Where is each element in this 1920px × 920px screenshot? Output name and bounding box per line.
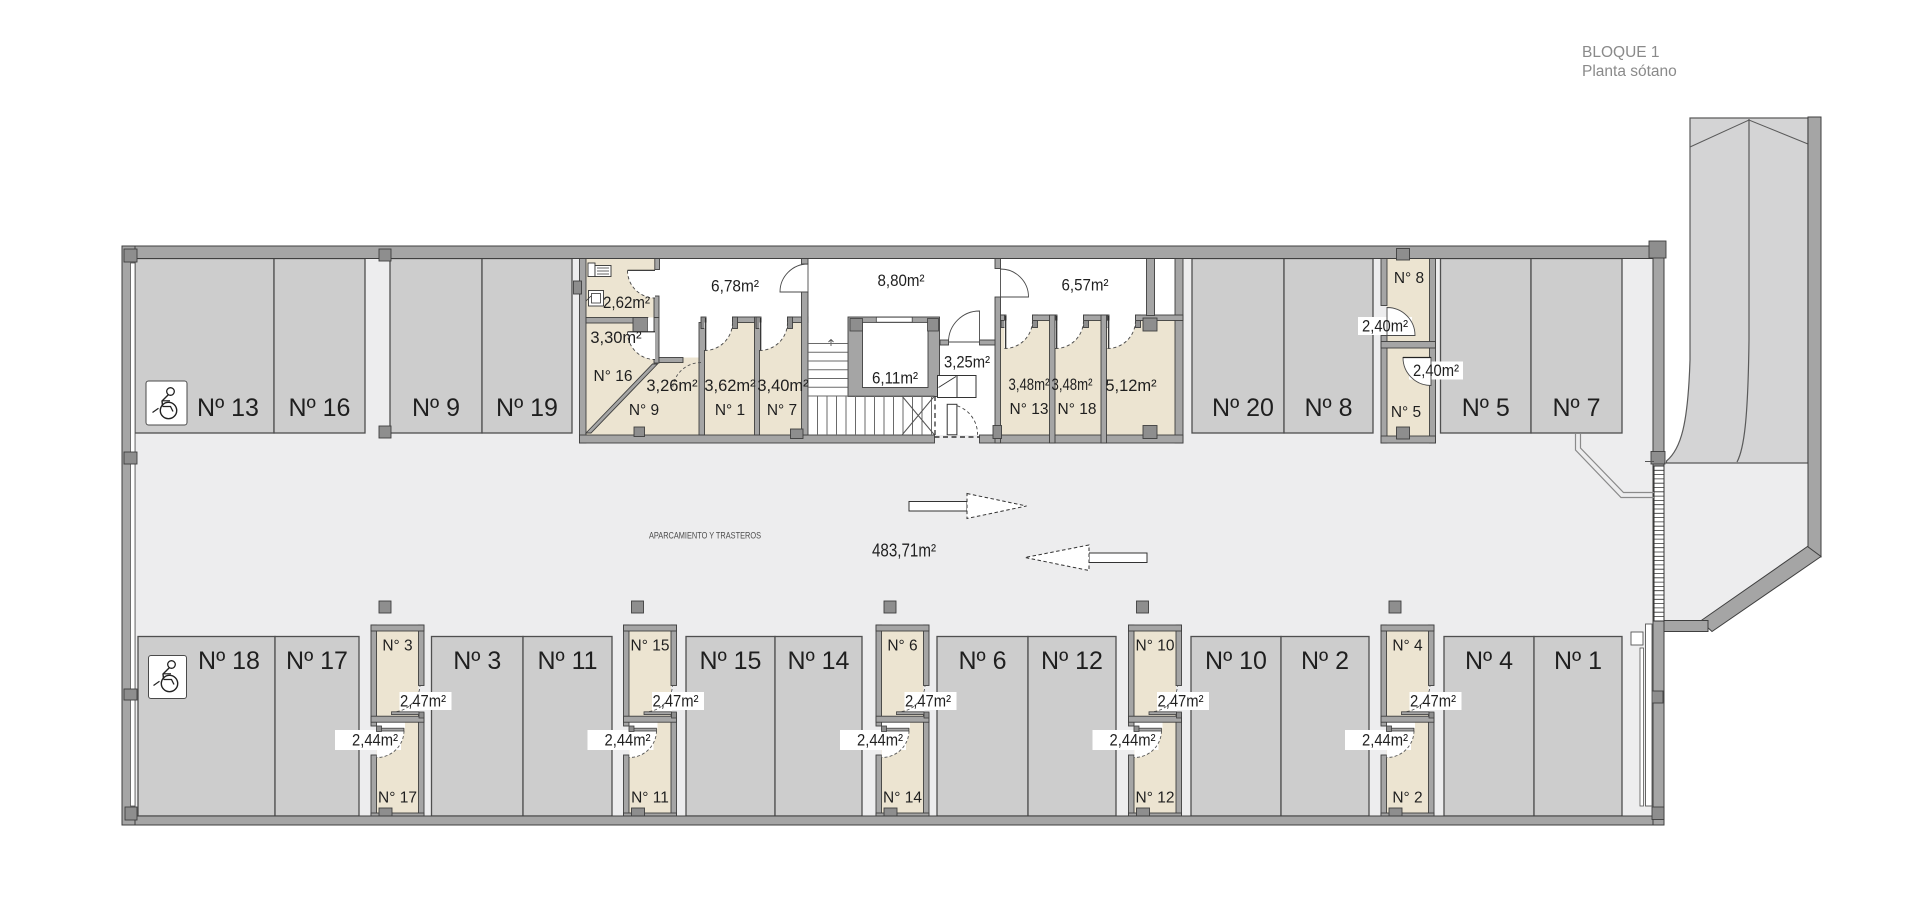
svg-text:2,44m²: 2,44m² [605,732,651,750]
svg-text:2,44m²: 2,44m² [1362,732,1408,750]
svg-text:N° 13: N° 13 [1010,401,1049,418]
svg-text:N° 14: N° 14 [883,790,922,807]
svg-text:N° 2: N° 2 [1392,790,1422,807]
svg-text:3,62m²: 3,62m² [704,377,756,395]
svg-text:APARCAMIENTO Y TRASTEROS: APARCAMIENTO Y TRASTEROS [649,531,761,541]
svg-text:2,44m²: 2,44m² [1110,732,1156,750]
svg-text:N° 6: N° 6 [887,638,917,655]
svg-text:N° 15: N° 15 [631,638,670,655]
svg-text:Nº 12: Nº 12 [1041,647,1103,675]
svg-text:6,78m²: 6,78m² [711,277,759,296]
svg-text:N° 1: N° 1 [715,402,745,419]
svg-text:Nº 15: Nº 15 [700,647,762,675]
svg-text:Nº 17: Nº 17 [286,647,348,675]
svg-text:5,12m²: 5,12m² [1105,377,1157,395]
svg-text:2,47m²: 2,47m² [905,693,951,711]
svg-text:2,47m²: 2,47m² [400,693,446,711]
svg-text:BLOQUE 1: BLOQUE 1 [1582,44,1660,61]
svg-text:Nº 2: Nº 2 [1301,647,1349,675]
svg-text:Nº 13: Nº 13 [197,394,259,422]
svg-text:3,30m²: 3,30m² [590,329,642,347]
svg-text:N° 10: N° 10 [1136,638,1175,655]
svg-text:N° 8: N° 8 [1394,270,1424,287]
svg-text:Nº 19: Nº 19 [496,394,558,422]
svg-text:3,48m²: 3,48m² [1052,376,1093,394]
svg-text:2,47m²: 2,47m² [1158,693,1204,711]
svg-text:N° 11: N° 11 [631,790,669,807]
svg-text:3,48m²: 3,48m² [1009,376,1050,394]
svg-text:Nº 8: Nº 8 [1304,394,1352,422]
svg-text:Nº 7: Nº 7 [1552,394,1600,422]
svg-text:Nº 9: Nº 9 [412,394,460,422]
svg-text:Nº 16: Nº 16 [289,394,351,422]
svg-text:6,11m²: 6,11m² [872,369,918,388]
svg-text:483,71m²: 483,71m² [872,541,936,561]
svg-text:Nº 10: Nº 10 [1205,647,1267,675]
svg-text:2,62m²: 2,62m² [603,294,650,312]
svg-text:N° 5: N° 5 [1391,404,1421,421]
svg-text:3,40m²: 3,40m² [757,377,809,395]
svg-text:N° 18: N° 18 [1058,401,1097,418]
svg-text:2,44m²: 2,44m² [352,732,398,750]
svg-text:2,40m²: 2,40m² [1413,362,1459,380]
svg-text:6,57m²: 6,57m² [1062,276,1109,295]
svg-text:Nº 20: Nº 20 [1212,394,1274,422]
svg-text:Nº 14: Nº 14 [788,647,850,675]
svg-text:N° 3: N° 3 [382,638,412,655]
svg-text:N° 16: N° 16 [594,368,633,385]
svg-text:N° 17: N° 17 [378,790,417,807]
svg-text:Nº 3: Nº 3 [453,647,501,675]
svg-text:Nº 5: Nº 5 [1462,394,1510,422]
svg-text:Nº 1: Nº 1 [1554,647,1602,675]
svg-text:8,80m²: 8,80m² [878,271,925,290]
svg-text:Nº 4: Nº 4 [1465,647,1513,675]
svg-text:Nº 6: Nº 6 [958,647,1006,675]
svg-text:N° 7: N° 7 [767,402,797,419]
svg-text:N° 4: N° 4 [1392,638,1423,655]
svg-text:Nº 18: Nº 18 [198,647,260,675]
svg-text:2,47m²: 2,47m² [653,693,699,711]
svg-text:3,26m²: 3,26m² [646,377,698,395]
svg-text:2,40m²: 2,40m² [1362,318,1408,336]
svg-text:2,44m²: 2,44m² [857,732,903,750]
svg-text:2,47m²: 2,47m² [1410,693,1456,711]
svg-text:N° 9: N° 9 [629,402,659,419]
svg-text:Nº 11: Nº 11 [537,647,597,675]
svg-text:N° 12: N° 12 [1136,790,1175,807]
svg-text:Planta sótano: Planta sótano [1582,63,1677,80]
svg-text:3,25m²: 3,25m² [944,353,990,372]
